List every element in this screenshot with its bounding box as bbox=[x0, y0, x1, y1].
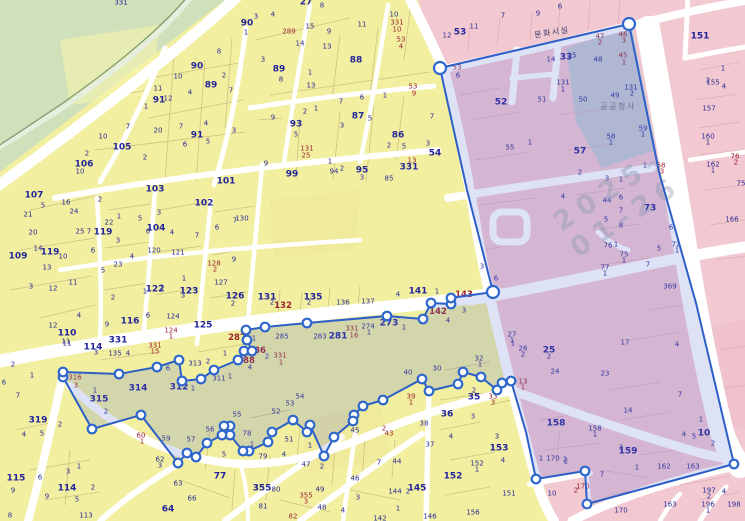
parcel-patch bbox=[270, 190, 360, 258]
selection-vertex[interactable] bbox=[487, 286, 499, 298]
selection-vertex[interactable] bbox=[175, 356, 184, 365]
selection-vertex[interactable] bbox=[581, 467, 590, 476]
map-viewport[interactable]: 문화시설공공청사33190190828971011911241207914365… bbox=[0, 0, 745, 521]
selection-vertex[interactable] bbox=[289, 416, 298, 425]
selection-vertex[interactable] bbox=[303, 428, 312, 437]
selection-vertex[interactable] bbox=[234, 356, 243, 365]
selection-vertex[interactable] bbox=[434, 62, 446, 74]
selection-vertex[interactable] bbox=[532, 475, 541, 484]
selection-vertex[interactable] bbox=[243, 336, 252, 345]
selection-vertex[interactable] bbox=[174, 459, 183, 468]
selection-vertex[interactable] bbox=[493, 386, 502, 395]
selection-vertex[interactable] bbox=[59, 368, 68, 377]
selection-vertex[interactable] bbox=[192, 453, 201, 462]
selection-vertex[interactable] bbox=[447, 294, 456, 303]
selection-vertex[interactable] bbox=[425, 387, 434, 396]
selection-vertex[interactable] bbox=[320, 452, 329, 461]
selection-vertex[interactable] bbox=[477, 373, 486, 382]
selection-vertex[interactable] bbox=[153, 363, 162, 372]
selection-vertex[interactable] bbox=[623, 18, 635, 30]
selection-vertex[interactable] bbox=[203, 439, 212, 448]
selection-vertex[interactable] bbox=[264, 438, 273, 447]
selection-vertex[interactable] bbox=[454, 380, 463, 389]
selection-vertex[interactable] bbox=[303, 319, 312, 328]
selection-vertex[interactable] bbox=[507, 377, 516, 386]
selection-vertex[interactable] bbox=[359, 402, 368, 411]
selection-vertex[interactable] bbox=[115, 370, 124, 379]
selection-vertex[interactable] bbox=[183, 449, 192, 458]
selection-vertex[interactable] bbox=[220, 422, 229, 431]
selection-vertex[interactable] bbox=[418, 375, 427, 384]
selection-vertex[interactable] bbox=[88, 425, 97, 434]
selection-vertex[interactable] bbox=[459, 368, 468, 377]
selection-vertex[interactable] bbox=[239, 447, 248, 456]
selection-vertex[interactable] bbox=[349, 417, 358, 426]
selection-vertex[interactable] bbox=[379, 396, 388, 405]
selection-vertex[interactable] bbox=[330, 433, 339, 442]
selection-vertex[interactable] bbox=[248, 347, 257, 356]
selection-vertex[interactable] bbox=[261, 323, 270, 332]
selection-vertex[interactable] bbox=[210, 366, 219, 375]
selection-vertex[interactable] bbox=[178, 377, 187, 386]
selection-vertex[interactable] bbox=[419, 315, 428, 324]
selection-vertex[interactable] bbox=[427, 299, 436, 308]
selection-vertex[interactable] bbox=[583, 500, 592, 509]
selection-vertex[interactable] bbox=[268, 428, 277, 437]
selection-vertex[interactable] bbox=[383, 312, 392, 321]
selection-vertex[interactable] bbox=[242, 326, 251, 335]
selection-vertex[interactable] bbox=[197, 375, 206, 384]
selection-vertex[interactable] bbox=[137, 411, 146, 420]
selection-vertex[interactable] bbox=[730, 460, 739, 469]
selection-vertex[interactable] bbox=[218, 431, 227, 440]
